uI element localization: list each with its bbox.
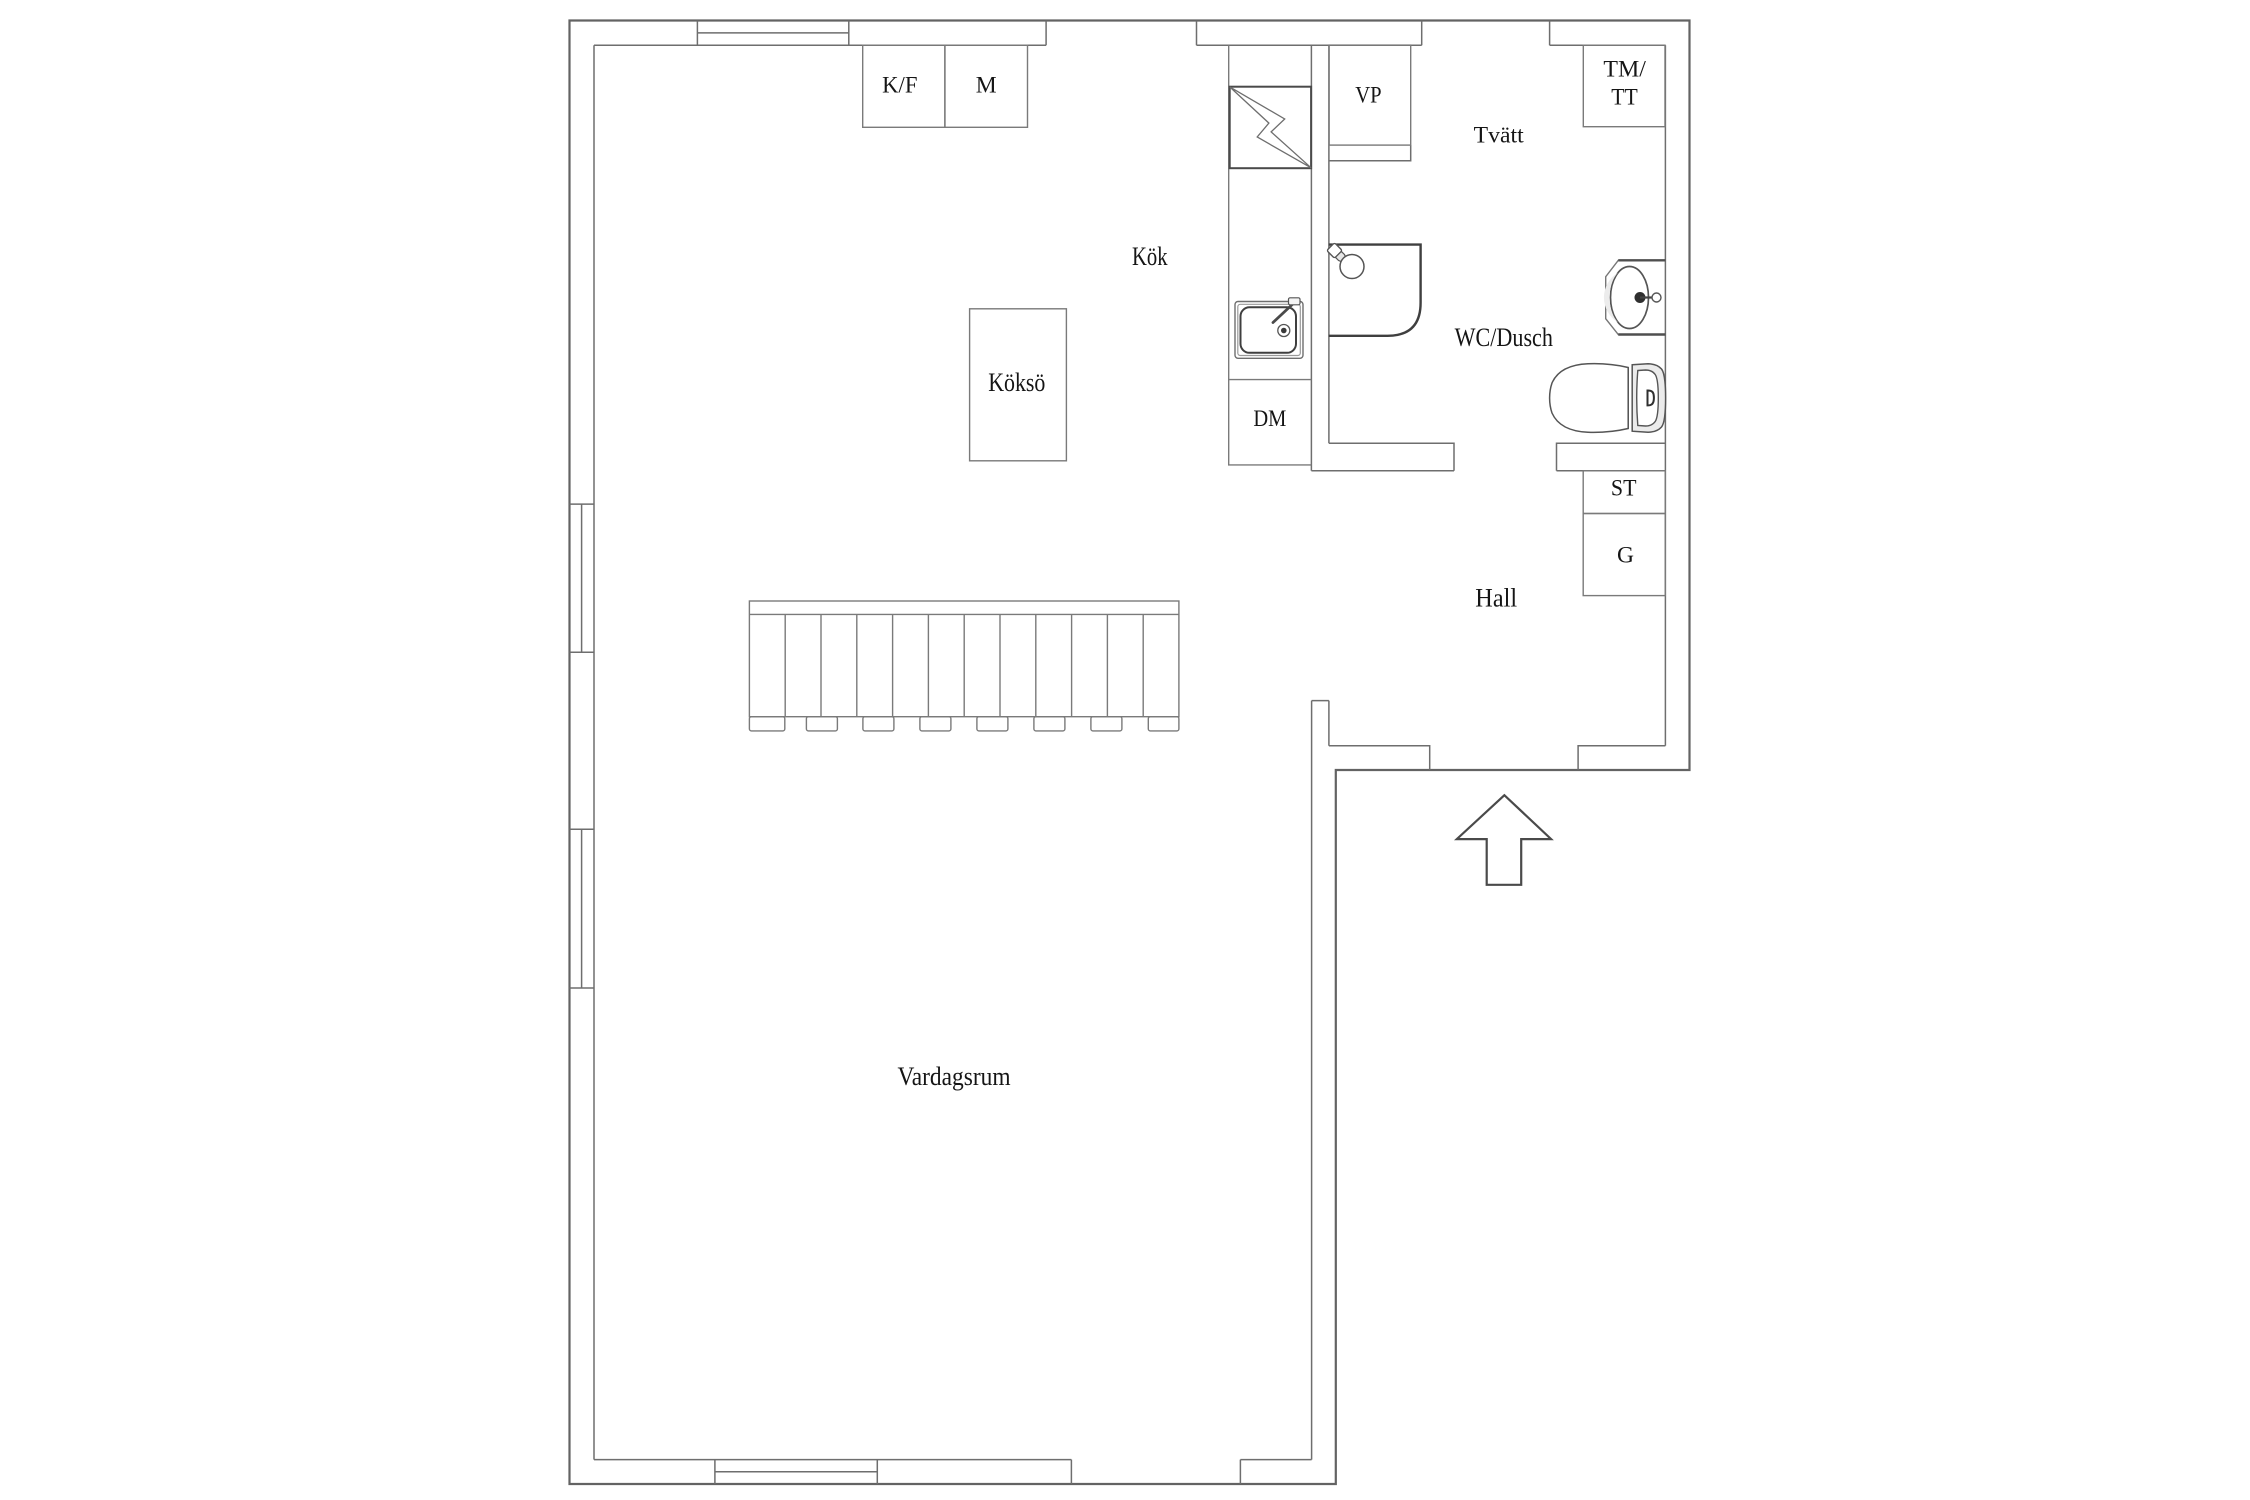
svg-text:M: M (976, 73, 997, 99)
svg-text:TM/: TM/ (1603, 56, 1646, 82)
svg-text:WC/Dusch: WC/Dusch (1455, 322, 1553, 352)
svg-text:Hall: Hall (1475, 582, 1517, 612)
svg-text:K/F: K/F (882, 73, 917, 99)
svg-text:G: G (1617, 543, 1634, 569)
svg-text:Tvätt: Tvätt (1474, 122, 1524, 148)
svg-text:ST: ST (1611, 475, 1637, 501)
svg-text:TT: TT (1611, 84, 1638, 110)
svg-text:Köksö: Köksö (988, 367, 1045, 397)
svg-text:DM: DM (1253, 406, 1286, 432)
svg-text:Vardagsrum: Vardagsrum (897, 1061, 1010, 1091)
svg-text:VP: VP (1355, 82, 1381, 108)
svg-text:Kök: Kök (1132, 241, 1168, 271)
